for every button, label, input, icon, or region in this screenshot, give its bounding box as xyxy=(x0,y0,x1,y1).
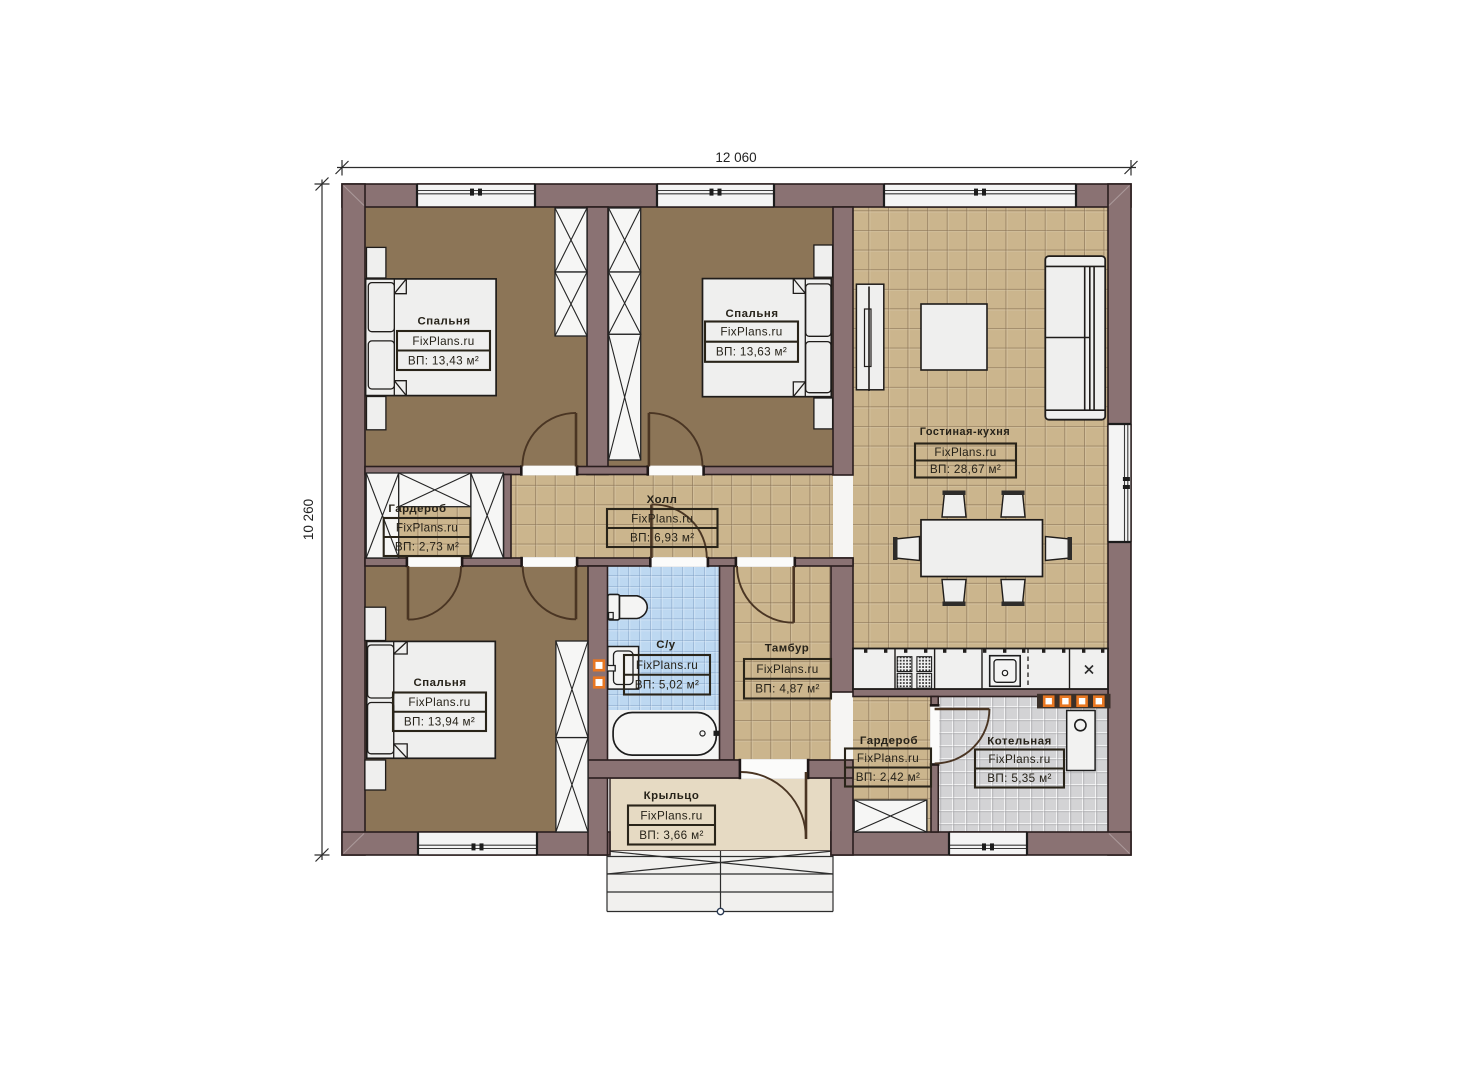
svg-text:ВП: 2,42 м²: ВП: 2,42 м² xyxy=(856,771,920,784)
svg-text:Спальня: Спальня xyxy=(417,316,470,328)
svg-text:ВП: 28,67 м²: ВП: 28,67 м² xyxy=(930,463,1001,476)
svg-text:Спальня: Спальня xyxy=(725,308,778,320)
svg-text:Холл: Холл xyxy=(647,494,678,506)
svg-text:FixPlans.ru: FixPlans.ru xyxy=(631,513,693,526)
svg-text:ВП: 3,66 м²: ВП: 3,66 м² xyxy=(639,829,703,842)
svg-text:Гардероб: Гардероб xyxy=(388,503,446,515)
svg-text:Котельная: Котельная xyxy=(987,736,1052,748)
svg-text:FixPlans.ru: FixPlans.ru xyxy=(408,696,470,709)
svg-text:10 260: 10 260 xyxy=(301,499,316,540)
svg-text:ВП: 5,02 м²: ВП: 5,02 м² xyxy=(635,679,699,692)
svg-text:FixPlans.ru: FixPlans.ru xyxy=(857,752,919,765)
svg-text:ВП: 13,43 м²: ВП: 13,43 м² xyxy=(408,354,479,367)
svg-text:ВП: 13,63 м²: ВП: 13,63 м² xyxy=(716,346,787,359)
svg-text:FixPlans.ru: FixPlans.ru xyxy=(640,809,702,822)
svg-text:ВП: 13,94 м²: ВП: 13,94 м² xyxy=(404,715,475,728)
svg-text:С/у: С/у xyxy=(656,639,675,651)
svg-text:Крыльцо: Крыльцо xyxy=(644,790,700,802)
svg-text:Гардероб: Гардероб xyxy=(860,735,918,747)
svg-text:Тамбур: Тамбур xyxy=(765,643,810,655)
svg-text:FixPlans.ru: FixPlans.ru xyxy=(396,522,458,535)
svg-text:FixPlans.ru: FixPlans.ru xyxy=(412,335,474,348)
svg-text:ВП: 2,73 м²: ВП: 2,73 м² xyxy=(395,541,459,554)
svg-text:Спальня: Спальня xyxy=(413,677,466,689)
svg-text:12 060: 12 060 xyxy=(715,150,756,165)
svg-text:ВП: 6,93 м²: ВП: 6,93 м² xyxy=(630,532,694,545)
svg-text:FixPlans.ru: FixPlans.ru xyxy=(720,326,782,339)
svg-text:FixPlans.ru: FixPlans.ru xyxy=(988,753,1050,766)
svg-text:ВП: 5,35 м²: ВП: 5,35 м² xyxy=(987,772,1051,785)
svg-text:FixPlans.ru: FixPlans.ru xyxy=(636,659,698,672)
svg-text:FixPlans.ru: FixPlans.ru xyxy=(934,446,996,459)
svg-text:Гостиная-кухня: Гостиная-кухня xyxy=(920,426,1010,438)
svg-text:FixPlans.ru: FixPlans.ru xyxy=(756,663,818,676)
svg-text:ВП: 4,87 м²: ВП: 4,87 м² xyxy=(755,683,819,696)
